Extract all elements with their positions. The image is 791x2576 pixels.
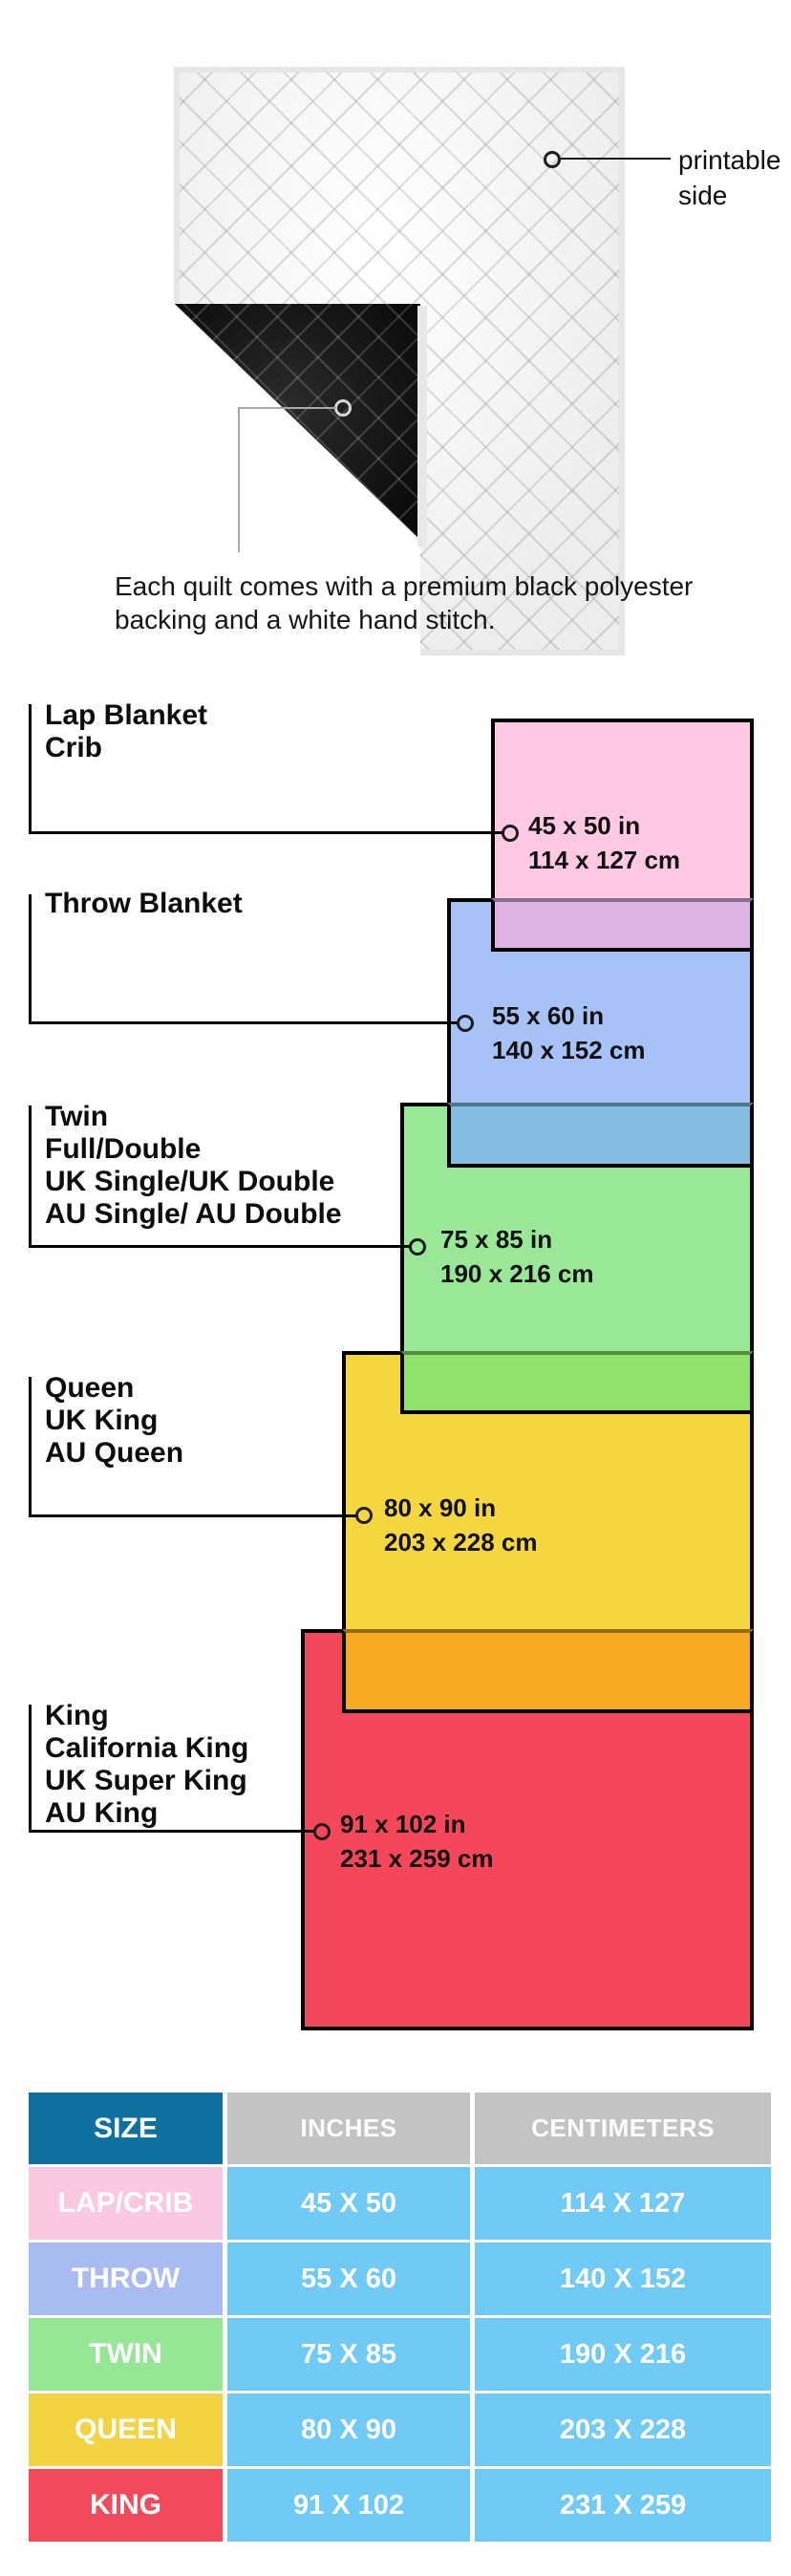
size-table: SIZE INCHES CENTIMETERS LAP/CRIB 45 X 50… — [29, 2093, 771, 2542]
dims-throw: 55 x 60 in 140 x 152 cm — [492, 998, 645, 1067]
header-centimeters: CENTIMETERS — [475, 2093, 771, 2164]
table-row-lap-crib: LAP/CRIB 45 X 50 114 X 127 — [29, 2167, 771, 2240]
overlap-throw-twin — [447, 1103, 754, 1168]
leader-lap-vertical — [29, 704, 32, 834]
table-row-king: KING 91 X 102 231 X 259 — [29, 2469, 771, 2542]
marker-throw — [457, 1015, 474, 1032]
leader-queen-horizontal — [29, 1514, 358, 1517]
dims-twin: 75 x 85 in 190 x 216 cm — [440, 1222, 593, 1291]
cell-inches-king: 91 X 102 — [227, 2469, 470, 2542]
label-queen: Queen UK King AU Queen — [45, 1372, 183, 1470]
size-table-header-row: SIZE INCHES CENTIMETERS — [29, 2093, 771, 2164]
leader-throw-vertical — [29, 894, 32, 1024]
cell-inches-lap-crib: 45 X 50 — [227, 2167, 470, 2240]
table-row-twin: TWIN 75 X 85 190 X 216 — [29, 2318, 771, 2391]
marker-queen — [355, 1507, 373, 1524]
cell-inches-twin: 75 X 85 — [227, 2318, 470, 2391]
leader-twin-vertical — [29, 1106, 32, 1248]
marker-lap — [502, 825, 519, 842]
table-row-throw: THROW 55 X 60 140 X 152 — [29, 2243, 771, 2315]
label-king: King California King UK Super King AU Ki… — [45, 1700, 248, 1830]
cell-size-queen: QUEEN — [29, 2394, 223, 2466]
cell-cm-lap-crib: 114 X 127 — [475, 2167, 771, 2240]
marker-twin — [409, 1238, 426, 1256]
cell-size-lap-crib: LAP/CRIB — [29, 2167, 223, 2240]
cell-size-twin: TWIN — [29, 2318, 223, 2391]
leader-lap-horizontal — [29, 831, 504, 834]
dims-queen: 80 x 90 in 203 x 228 cm — [384, 1491, 537, 1559]
leader-king-horizontal — [29, 1830, 316, 1833]
label-lap-crib: Lap Blanket Crib — [45, 699, 207, 764]
leader-twin-horizontal — [29, 1245, 412, 1248]
label-throw: Throw Blanket — [45, 888, 243, 920]
cell-cm-king: 231 X 259 — [475, 2469, 771, 2542]
quilt-size-infographic: printable side Each quilt comes with a p… — [0, 0, 791, 2576]
header-size: SIZE — [29, 2093, 223, 2164]
overlap-twin-queen — [400, 1351, 754, 1414]
cell-inches-throw: 55 X 60 — [227, 2243, 470, 2315]
cell-inches-queen: 80 X 90 — [227, 2394, 470, 2466]
overlap-lap-throw — [491, 898, 754, 952]
marker-king — [313, 1823, 331, 1840]
cell-cm-queen: 203 X 228 — [475, 2394, 771, 2466]
leader-queen-vertical — [29, 1377, 32, 1517]
dims-lap-crib: 45 x 50 in 114 x 127 cm — [528, 808, 680, 877]
cell-size-king: KING — [29, 2469, 223, 2542]
label-twin: Twin Full/Double UK Single/UK Double AU … — [45, 1101, 342, 1231]
cell-cm-throw: 140 X 152 — [475, 2243, 771, 2315]
leader-king-vertical — [29, 1705, 32, 1833]
header-inches: INCHES — [227, 2093, 470, 2164]
dims-king: 91 x 102 in 231 x 259 cm — [340, 1807, 493, 1876]
cell-size-throw: THROW — [29, 2243, 223, 2315]
cell-cm-twin: 190 X 216 — [475, 2318, 771, 2391]
leader-throw-horizontal — [29, 1021, 460, 1024]
table-row-queen: QUEEN 80 X 90 203 X 228 — [29, 2394, 771, 2466]
overlap-queen-king — [342, 1629, 754, 1713]
